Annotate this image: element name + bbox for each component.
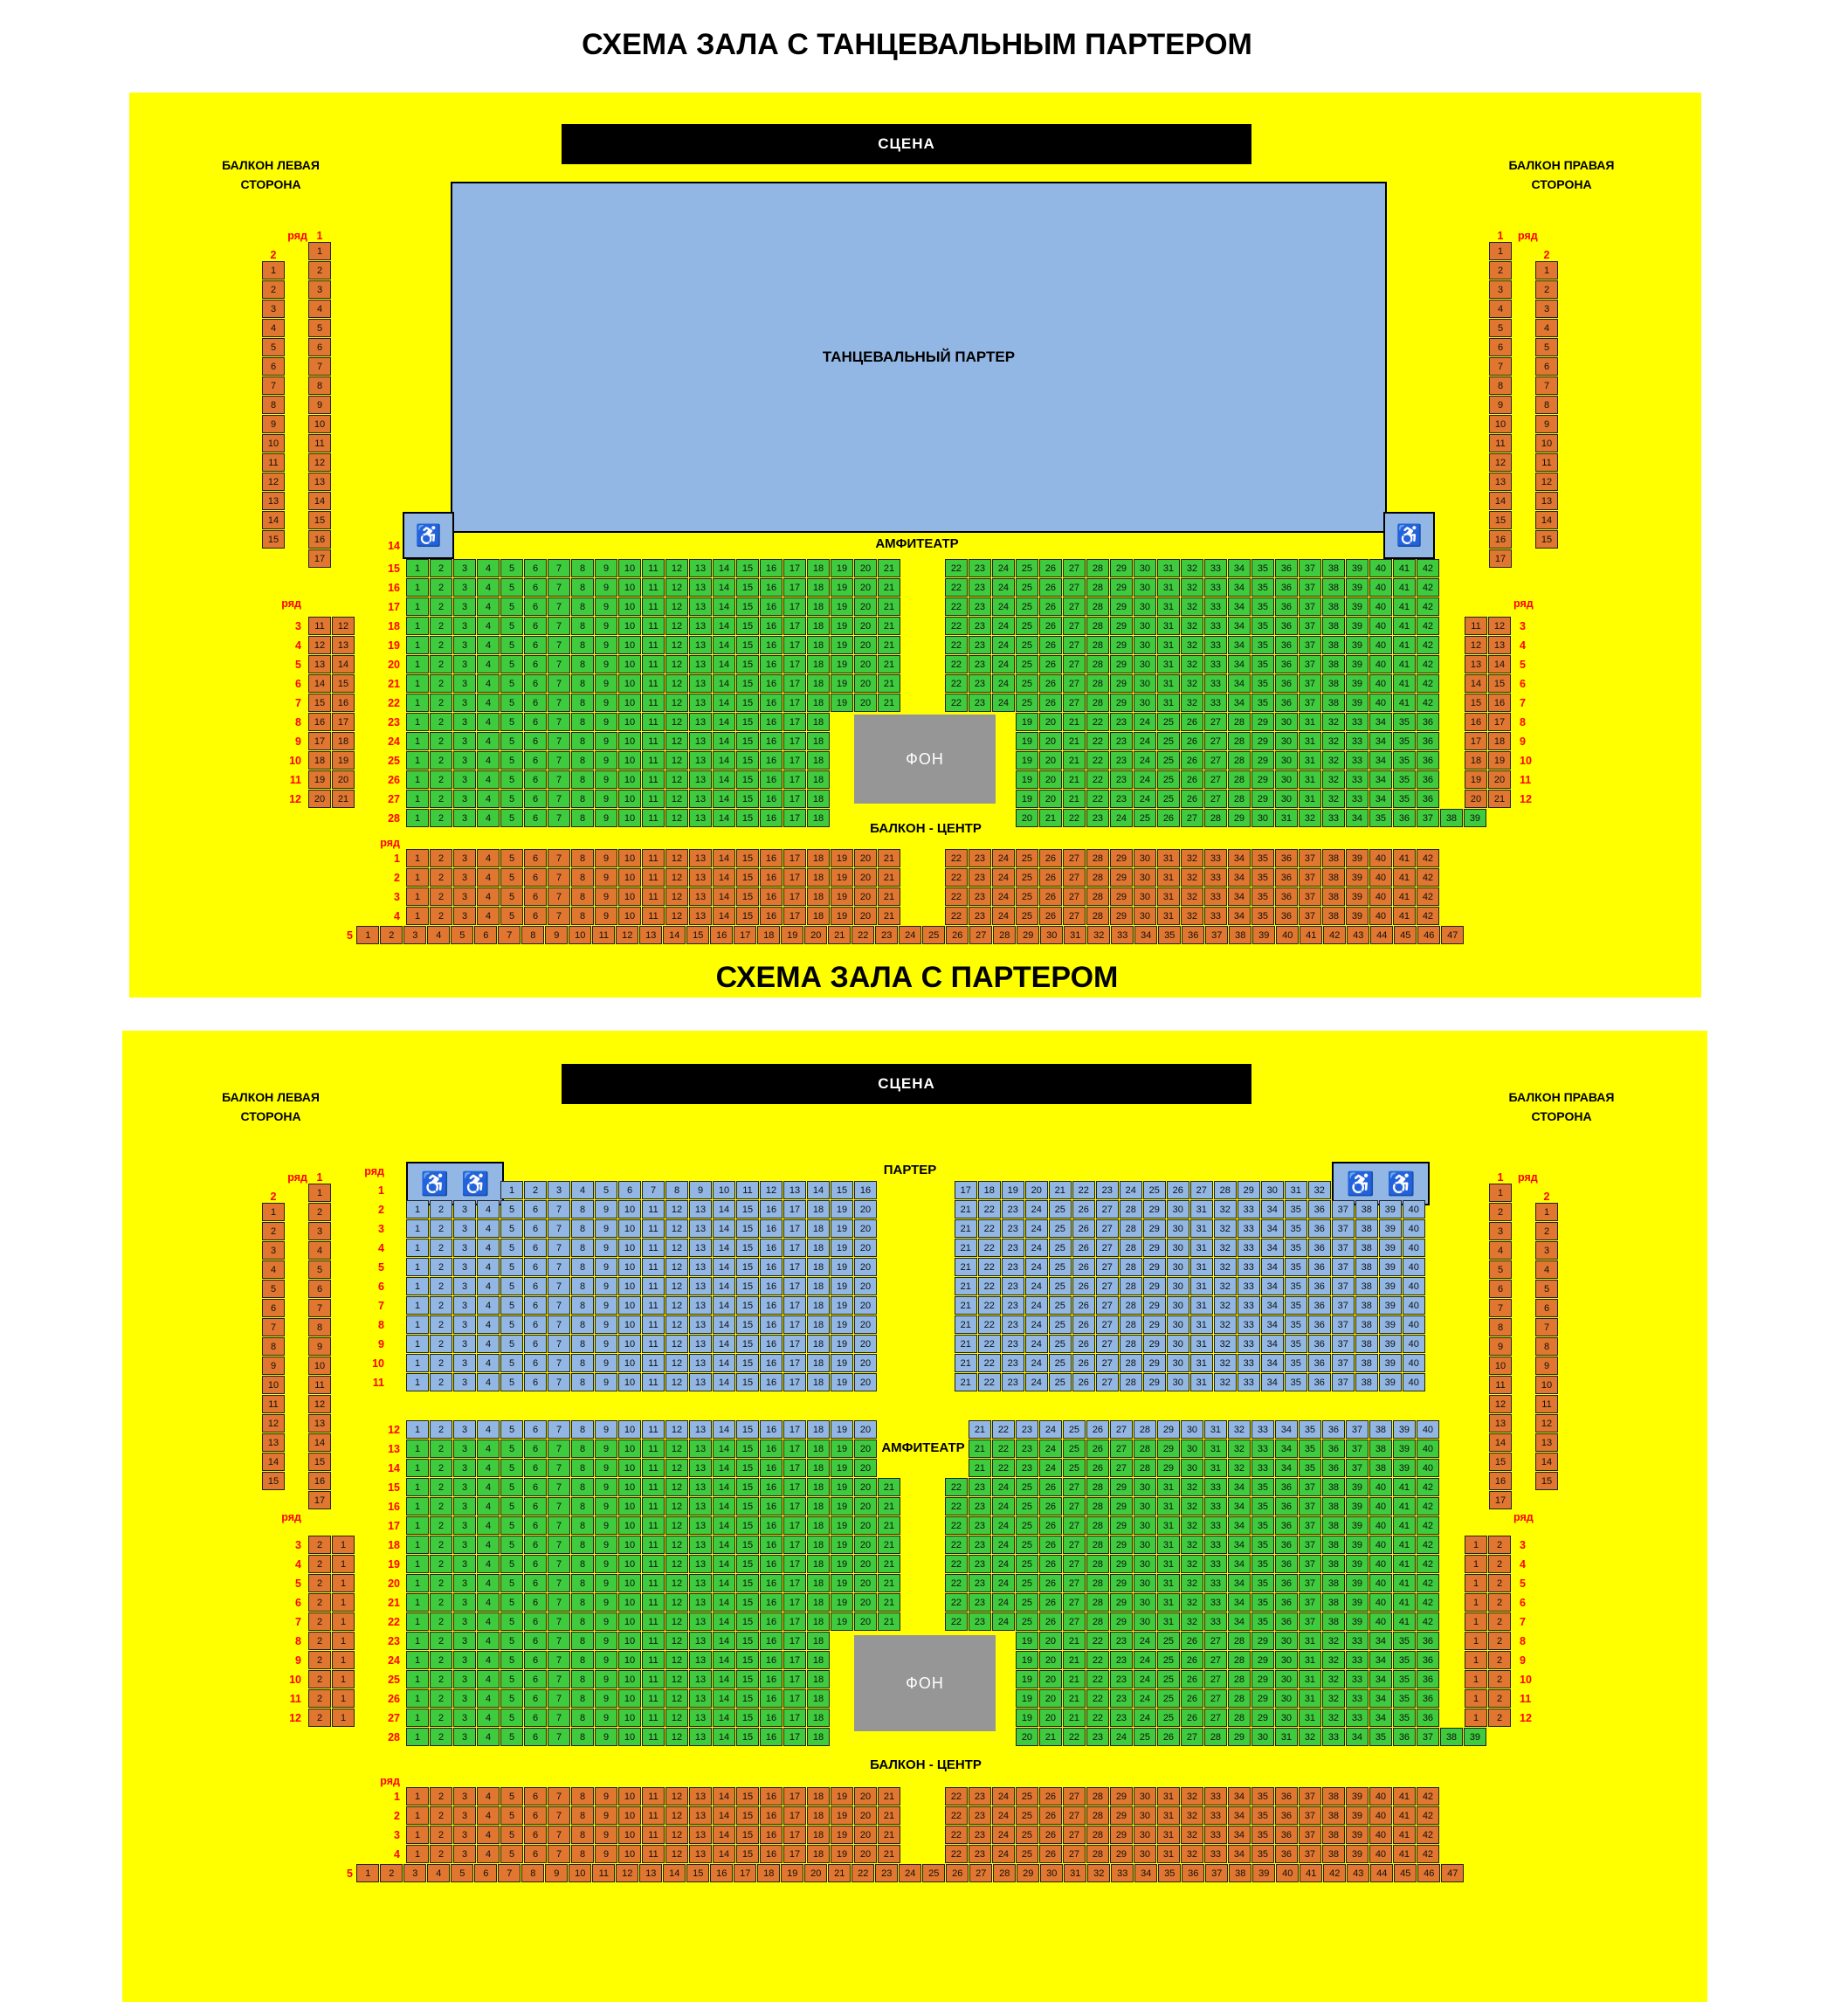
seat[interactable]: 10 — [618, 1239, 641, 1257]
seat[interactable]: 3 — [453, 1478, 476, 1496]
seat[interactable]: 5 — [451, 926, 473, 944]
balcony-seat[interactable]: 11 — [1465, 617, 1487, 635]
seat[interactable]: 35 — [1393, 1709, 1416, 1727]
seat[interactable]: 25 — [1157, 751, 1180, 770]
seat[interactable]: 11 — [642, 694, 665, 712]
seat[interactable]: 36 — [1417, 1709, 1439, 1727]
seat[interactable]: 2 — [430, 732, 452, 750]
seat[interactable]: 30 — [1181, 1459, 1203, 1477]
seat[interactable]: 31 — [1157, 1555, 1180, 1573]
seat[interactable]: 43 — [1347, 926, 1369, 944]
seat[interactable]: 19 — [831, 1612, 853, 1631]
seat[interactable]: 38 — [1229, 1864, 1251, 1882]
seat[interactable]: 28 — [1086, 636, 1109, 654]
seat[interactable]: 30 — [1134, 849, 1156, 867]
seat[interactable]: 1 — [406, 694, 429, 712]
seat[interactable]: 34 — [1369, 751, 1392, 770]
seat[interactable]: 11 — [642, 1826, 665, 1844]
balcony-seat[interactable]: 7 — [1535, 376, 1558, 395]
seat[interactable]: 20 — [854, 578, 877, 597]
seat[interactable]: 28 — [1086, 1806, 1109, 1825]
seat[interactable]: 20 — [854, 1593, 877, 1612]
balcony-seat[interactable]: 2 — [308, 261, 331, 280]
seat[interactable]: 39 — [1346, 617, 1369, 635]
seat[interactable]: 13 — [689, 849, 712, 867]
seat[interactable]: 10 — [618, 809, 641, 827]
seat[interactable]: 11 — [592, 1864, 615, 1882]
seat[interactable]: 27 — [1063, 1612, 1086, 1631]
seat[interactable]: 1 — [406, 578, 429, 597]
seat[interactable]: 31 — [1299, 732, 1321, 750]
seat[interactable]: 2 — [430, 1787, 452, 1805]
seat[interactable]: 14 — [713, 1277, 735, 1295]
seat[interactable]: 21 — [878, 674, 900, 693]
seat[interactable]: 37 — [1299, 694, 1321, 712]
seat[interactable]: 19 — [831, 1459, 853, 1477]
seat[interactable]: 27 — [1204, 790, 1227, 808]
seat[interactable]: 30 — [1134, 887, 1156, 906]
seat[interactable]: 22 — [945, 559, 968, 577]
seat[interactable]: 27 — [1063, 636, 1086, 654]
seat[interactable]: 27 — [1063, 1806, 1086, 1825]
seat[interactable]: 37 — [1299, 597, 1321, 616]
seat[interactable]: 15 — [736, 1296, 759, 1315]
seat[interactable]: 32 — [1322, 1709, 1345, 1727]
seat[interactable]: 35 — [1393, 732, 1416, 750]
seat[interactable]: 3 — [453, 751, 476, 770]
seat[interactable]: 6 — [524, 1787, 547, 1805]
seat[interactable]: 27 — [1063, 1516, 1086, 1535]
seat[interactable]: 25 — [1049, 1219, 1072, 1238]
seat[interactable]: 24 — [992, 1536, 1015, 1554]
balcony-seat[interactable]: 1 — [1489, 242, 1512, 260]
seat[interactable]: 14 — [713, 1651, 735, 1669]
seat[interactable]: 25 — [1157, 1689, 1180, 1708]
seat[interactable]: 34 — [1261, 1315, 1284, 1334]
seat[interactable]: 20 — [1039, 790, 1062, 808]
seat[interactable]: 16 — [760, 1574, 783, 1592]
seat[interactable]: 22 — [978, 1354, 1001, 1372]
seat[interactable]: 13 — [689, 1612, 712, 1631]
seat[interactable]: 42 — [1417, 1593, 1439, 1612]
seat[interactable]: 27 — [1063, 849, 1086, 867]
seat[interactable]: 5 — [500, 809, 523, 827]
seat[interactable]: 4 — [477, 694, 500, 712]
seat[interactable]: 33 — [1251, 1420, 1274, 1439]
balcony-seat[interactable]: 7 — [308, 1299, 331, 1317]
seat[interactable]: 16 — [760, 1315, 783, 1334]
seat[interactable]: 33 — [1204, 578, 1227, 597]
seat[interactable]: 6 — [524, 1277, 547, 1295]
balcony-seat[interactable]: 6 — [1535, 357, 1558, 376]
seat[interactable]: 26 — [1039, 868, 1062, 887]
seat[interactable]: 13 — [689, 1258, 712, 1276]
seat[interactable]: 30 — [1167, 1200, 1189, 1219]
seat[interactable]: 13 — [689, 1354, 712, 1372]
seat[interactable]: 6 — [524, 1516, 547, 1535]
seat[interactable]: 17 — [783, 636, 806, 654]
seat[interactable]: 39 — [1346, 597, 1369, 616]
seat[interactable]: 33 — [1322, 809, 1345, 827]
seat[interactable]: 22 — [945, 1826, 968, 1844]
seat[interactable]: 11 — [642, 1612, 665, 1631]
seat[interactable]: 6 — [524, 1651, 547, 1669]
seat[interactable]: 40 — [1403, 1335, 1425, 1353]
seat[interactable]: 31 — [1299, 1670, 1321, 1688]
balcony-seat[interactable]: 1 — [1465, 1612, 1487, 1631]
seat[interactable]: 19 — [1016, 1632, 1038, 1650]
seat[interactable]: 7 — [548, 1239, 570, 1257]
balcony-seat[interactable]: 2 — [1488, 1632, 1511, 1650]
seat[interactable]: 10 — [618, 1459, 641, 1477]
seat[interactable]: 10 — [618, 1373, 641, 1391]
seat[interactable]: 7 — [548, 1651, 570, 1669]
seat[interactable]: 15 — [736, 694, 759, 712]
seat[interactable]: 20 — [854, 1459, 877, 1477]
balcony-seat[interactable]: 1 — [1535, 261, 1558, 280]
seat[interactable]: 15 — [736, 1277, 759, 1295]
balcony-seat[interactable]: 9 — [1489, 1337, 1512, 1356]
seat[interactable]: 36 — [1417, 1651, 1439, 1669]
seat[interactable]: 38 — [1369, 1459, 1392, 1477]
seat[interactable]: 24 — [1134, 790, 1156, 808]
seat[interactable]: 4 — [477, 849, 500, 867]
balcony-seat[interactable]: 15 — [1488, 674, 1511, 693]
seat[interactable]: 37 — [1299, 1593, 1321, 1612]
seat[interactable]: 34 — [1346, 1728, 1369, 1746]
seat[interactable]: 41 — [1393, 655, 1416, 673]
seat[interactable]: 33 — [1238, 1239, 1260, 1257]
seat[interactable]: 5 — [500, 636, 523, 654]
seat[interactable]: 35 — [1285, 1239, 1307, 1257]
seat[interactable]: 4 — [477, 1632, 500, 1650]
seat[interactable]: 6 — [524, 1574, 547, 1592]
seat[interactable]: 39 — [1346, 1516, 1369, 1535]
seat[interactable]: 6 — [524, 790, 547, 808]
balcony-seat[interactable]: 2 — [262, 1222, 285, 1240]
seat[interactable]: 38 — [1355, 1219, 1378, 1238]
seat[interactable]: 12 — [665, 732, 688, 750]
seat[interactable]: 10 — [618, 1497, 641, 1515]
seat[interactable]: 25 — [1157, 1670, 1180, 1688]
seat[interactable]: 8 — [571, 1440, 594, 1458]
seat[interactable]: 12 — [665, 770, 688, 789]
seat[interactable]: 25 — [1049, 1200, 1072, 1219]
seat[interactable]: 10 — [618, 1420, 641, 1439]
seat[interactable]: 5 — [500, 1593, 523, 1612]
seat[interactable]: 30 — [1134, 655, 1156, 673]
seat[interactable]: 31 — [1157, 1612, 1180, 1631]
seat[interactable]: 22 — [945, 636, 968, 654]
seat[interactable]: 35 — [1285, 1296, 1307, 1315]
seat[interactable]: 20 — [854, 1335, 877, 1353]
seat[interactable]: 7 — [548, 1420, 570, 1439]
seat[interactable]: 16 — [760, 732, 783, 750]
seat[interactable]: 19 — [831, 1440, 853, 1458]
seat[interactable]: 30 — [1167, 1277, 1189, 1295]
seat[interactable]: 15 — [736, 809, 759, 827]
seat[interactable]: 21 — [1063, 751, 1086, 770]
seat[interactable]: 17 — [783, 1296, 806, 1315]
seat[interactable]: 31 — [1190, 1277, 1213, 1295]
seat[interactable]: 30 — [1134, 1845, 1156, 1863]
seat[interactable]: 46 — [1417, 1864, 1440, 1882]
seat[interactable]: 39 — [1346, 1593, 1369, 1612]
seat[interactable]: 18 — [807, 770, 830, 789]
seat[interactable]: 29 — [1143, 1277, 1166, 1295]
seat[interactable]: 1 — [406, 1516, 429, 1535]
seat[interactable]: 34 — [1228, 1574, 1251, 1592]
seat[interactable]: 14 — [713, 636, 735, 654]
seat[interactable]: 16 — [760, 1373, 783, 1391]
seat[interactable]: 31 — [1275, 809, 1298, 827]
seat[interactable]: 16 — [760, 1593, 783, 1612]
seat[interactable]: 29 — [1157, 1420, 1180, 1439]
balcony-seat[interactable]: 2 — [1489, 1203, 1512, 1221]
seat[interactable]: 41 — [1393, 674, 1416, 693]
seat[interactable]: 3 — [453, 849, 476, 867]
seat[interactable]: 23 — [969, 1516, 991, 1535]
seat[interactable]: 10 — [618, 636, 641, 654]
seat[interactable]: 20 — [804, 1864, 827, 1882]
seat[interactable]: 28 — [1086, 1555, 1109, 1573]
seat[interactable]: 12 — [665, 1670, 688, 1688]
seat[interactable]: 25 — [1134, 809, 1156, 827]
seat[interactable]: 36 — [1275, 1612, 1298, 1631]
seat[interactable]: 3 — [453, 1670, 476, 1688]
seat[interactable]: 27 — [1096, 1315, 1119, 1334]
seat[interactable]: 1 — [406, 1354, 429, 1372]
seat[interactable]: 23 — [875, 926, 898, 944]
seat[interactable]: 7 — [548, 1277, 570, 1295]
seat[interactable]: 31 — [1299, 713, 1321, 731]
balcony-seat[interactable]: 19 — [1465, 770, 1487, 789]
seat[interactable]: 6 — [524, 809, 547, 827]
seat[interactable]: 17 — [783, 674, 806, 693]
seat[interactable]: 1 — [406, 1612, 429, 1631]
seat[interactable]: 21 — [878, 1787, 900, 1805]
seat[interactable]: 29 — [1228, 1728, 1251, 1746]
seat[interactable]: 12 — [665, 1516, 688, 1535]
seat[interactable]: 17 — [783, 617, 806, 635]
seat[interactable]: 26 — [1039, 1555, 1062, 1573]
seat[interactable]: 17 — [783, 1593, 806, 1612]
seat[interactable]: 11 — [642, 1296, 665, 1315]
balcony-seat[interactable]: 7 — [1535, 1318, 1558, 1336]
seat[interactable]: 22 — [978, 1239, 1001, 1257]
seat[interactable]: 37 — [1332, 1200, 1355, 1219]
seat[interactable]: 37 — [1299, 559, 1321, 577]
seat[interactable]: 18 — [807, 1459, 830, 1477]
seat[interactable]: 7 — [548, 674, 570, 693]
seat[interactable]: 34 — [1261, 1354, 1284, 1372]
seat[interactable]: 34 — [1275, 1440, 1298, 1458]
seat[interactable]: 3 — [453, 1787, 476, 1805]
seat[interactable]: 1 — [406, 1315, 429, 1334]
seat[interactable]: 17 — [734, 926, 756, 944]
seat[interactable]: 39 — [1346, 559, 1369, 577]
seat[interactable]: 6 — [524, 907, 547, 925]
balcony-seat[interactable]: 1 — [1489, 1184, 1512, 1202]
seat[interactable]: 13 — [689, 1632, 712, 1650]
seat[interactable]: 25 — [1016, 578, 1038, 597]
seat[interactable]: 5 — [500, 1632, 523, 1650]
seat[interactable]: 30 — [1275, 770, 1298, 789]
seat[interactable]: 7 — [498, 926, 521, 944]
seat[interactable]: 35 — [1251, 1787, 1274, 1805]
balcony-seat[interactable]: 19 — [1488, 751, 1511, 770]
seat[interactable]: 37 — [1332, 1296, 1355, 1315]
seat[interactable]: 12 — [665, 1593, 688, 1612]
seat[interactable]: 32 — [1299, 1728, 1321, 1746]
seat[interactable]: 21 — [955, 1200, 977, 1219]
seat[interactable]: 27 — [1063, 1826, 1086, 1844]
seat[interactable]: 13 — [689, 1826, 712, 1844]
seat[interactable]: 20 — [854, 1258, 877, 1276]
balcony-seat[interactable]: 3 — [1535, 1241, 1558, 1260]
seat[interactable]: 30 — [1181, 1440, 1203, 1458]
seat[interactable]: 27 — [1096, 1335, 1119, 1353]
seat[interactable]: 16 — [760, 617, 783, 635]
seat[interactable]: 33 — [1204, 694, 1227, 712]
seat[interactable]: 14 — [713, 1612, 735, 1631]
seat[interactable]: 10 — [618, 1574, 641, 1592]
balcony-seat[interactable]: 7 — [308, 357, 331, 376]
seat[interactable]: 2 — [430, 1239, 452, 1257]
seat[interactable]: 23 — [1110, 1689, 1133, 1708]
seat[interactable]: 19 — [831, 1536, 853, 1554]
seat[interactable]: 40 — [1369, 1555, 1392, 1573]
seat[interactable]: 34 — [1369, 1670, 1392, 1688]
balcony-seat[interactable]: 12 — [1535, 473, 1558, 491]
seat[interactable]: 22 — [992, 1459, 1015, 1477]
seat[interactable]: 15 — [736, 907, 759, 925]
seat[interactable]: 8 — [571, 1335, 594, 1353]
seat[interactable]: 10 — [618, 868, 641, 887]
seat[interactable]: 36 — [1275, 1787, 1298, 1805]
seat[interactable]: 26 — [1039, 1497, 1062, 1515]
seat[interactable]: 26 — [1039, 617, 1062, 635]
seat[interactable]: 1 — [406, 1728, 429, 1746]
seat[interactable]: 1 — [406, 617, 429, 635]
seat[interactable]: 15 — [736, 1593, 759, 1612]
seat[interactable]: 11 — [642, 1632, 665, 1650]
seat[interactable]: 26 — [1181, 732, 1203, 750]
seat[interactable]: 6 — [524, 1440, 547, 1458]
seat[interactable]: 33 — [1322, 1728, 1345, 1746]
seat[interactable]: 32 — [1228, 1420, 1251, 1439]
seat[interactable]: 19 — [831, 1574, 853, 1592]
seat[interactable]: 24 — [1025, 1258, 1048, 1276]
seat[interactable]: 4 — [477, 1335, 500, 1353]
seat[interactable]: 38 — [1440, 809, 1463, 827]
seat[interactable]: 22 — [945, 1536, 968, 1554]
seat[interactable]: 27 — [1096, 1239, 1119, 1257]
seat[interactable]: 14 — [713, 809, 735, 827]
balcony-seat[interactable]: 1 — [332, 1651, 355, 1669]
seat[interactable]: 20 — [854, 617, 877, 635]
seat[interactable]: 12 — [665, 1373, 688, 1391]
seat[interactable]: 36 — [1308, 1258, 1331, 1276]
seat[interactable]: 6 — [524, 1478, 547, 1496]
balcony-seat[interactable]: 12 — [1489, 453, 1512, 472]
seat[interactable]: 22 — [1063, 809, 1086, 827]
seat[interactable]: 23 — [969, 1536, 991, 1554]
seat[interactable]: 8 — [571, 694, 594, 712]
seat[interactable]: 31 — [1190, 1354, 1213, 1372]
seat[interactable]: 34 — [1228, 1612, 1251, 1631]
seat[interactable]: 16 — [760, 1536, 783, 1554]
balcony-seat[interactable]: 12 — [262, 473, 285, 491]
seat[interactable]: 29 — [1110, 887, 1133, 906]
seat[interactable]: 6 — [524, 849, 547, 867]
seat[interactable]: 6 — [524, 868, 547, 887]
seat[interactable]: 10 — [618, 694, 641, 712]
seat[interactable]: 14 — [713, 1845, 735, 1863]
seat[interactable]: 35 — [1393, 770, 1416, 789]
seat[interactable]: 11 — [642, 1845, 665, 1863]
seat[interactable]: 17 — [783, 1806, 806, 1825]
seat[interactable]: 42 — [1417, 1826, 1439, 1844]
seat[interactable]: 34 — [1261, 1200, 1284, 1219]
balcony-seat[interactable]: 11 — [1535, 1395, 1558, 1413]
seat[interactable]: 22 — [978, 1200, 1001, 1219]
seat[interactable]: 15 — [736, 1315, 759, 1334]
seat[interactable]: 17 — [783, 1651, 806, 1669]
seat[interactable]: 8 — [571, 559, 594, 577]
seat[interactable]: 4 — [477, 732, 500, 750]
seat[interactable]: 26 — [1086, 1459, 1109, 1477]
seat[interactable]: 34 — [1228, 617, 1251, 635]
seat[interactable]: 3 — [453, 1536, 476, 1554]
seat[interactable]: 30 — [1275, 1651, 1298, 1669]
seat[interactable]: 42 — [1417, 674, 1439, 693]
seat[interactable]: 5 — [500, 1459, 523, 1477]
seat[interactable]: 40 — [1369, 907, 1392, 925]
seat[interactable]: 5 — [500, 1258, 523, 1276]
seat[interactable]: 25 — [1063, 1420, 1086, 1439]
balcony-seat[interactable]: 21 — [332, 790, 355, 808]
seat[interactable]: 22 — [1086, 790, 1109, 808]
seat[interactable]: 33 — [1204, 1593, 1227, 1612]
seat[interactable]: 15 — [736, 636, 759, 654]
seat[interactable]: 22 — [1086, 1709, 1109, 1727]
seat[interactable]: 6 — [524, 1335, 547, 1353]
seat[interactable]: 18 — [807, 1536, 830, 1554]
seat[interactable]: 40 — [1403, 1354, 1425, 1372]
seat[interactable]: 7 — [548, 1219, 570, 1238]
seat[interactable]: 18 — [807, 1574, 830, 1592]
seat[interactable]: 4 — [477, 713, 500, 731]
seat[interactable]: 11 — [642, 1373, 665, 1391]
seat[interactable]: 11 — [642, 1574, 665, 1592]
seat[interactable]: 11 — [642, 751, 665, 770]
seat[interactable]: 25 — [1049, 1335, 1072, 1353]
seat[interactable]: 3 — [453, 1277, 476, 1295]
balcony-seat[interactable]: 2 — [1488, 1670, 1511, 1688]
seat[interactable]: 17 — [783, 1536, 806, 1554]
seat[interactable]: 32 — [1181, 887, 1203, 906]
seat[interactable]: 29 — [1110, 1806, 1133, 1825]
seat[interactable]: 14 — [713, 1200, 735, 1219]
seat[interactable]: 22 — [945, 597, 968, 616]
balcony-seat[interactable]: 1 — [1465, 1651, 1487, 1669]
seat[interactable]: 36 — [1322, 1459, 1345, 1477]
seat[interactable]: 37 — [1299, 655, 1321, 673]
seat[interactable]: 40 — [1403, 1239, 1425, 1257]
seat[interactable]: 23 — [969, 1593, 991, 1612]
seat[interactable]: 39 — [1346, 1536, 1369, 1554]
